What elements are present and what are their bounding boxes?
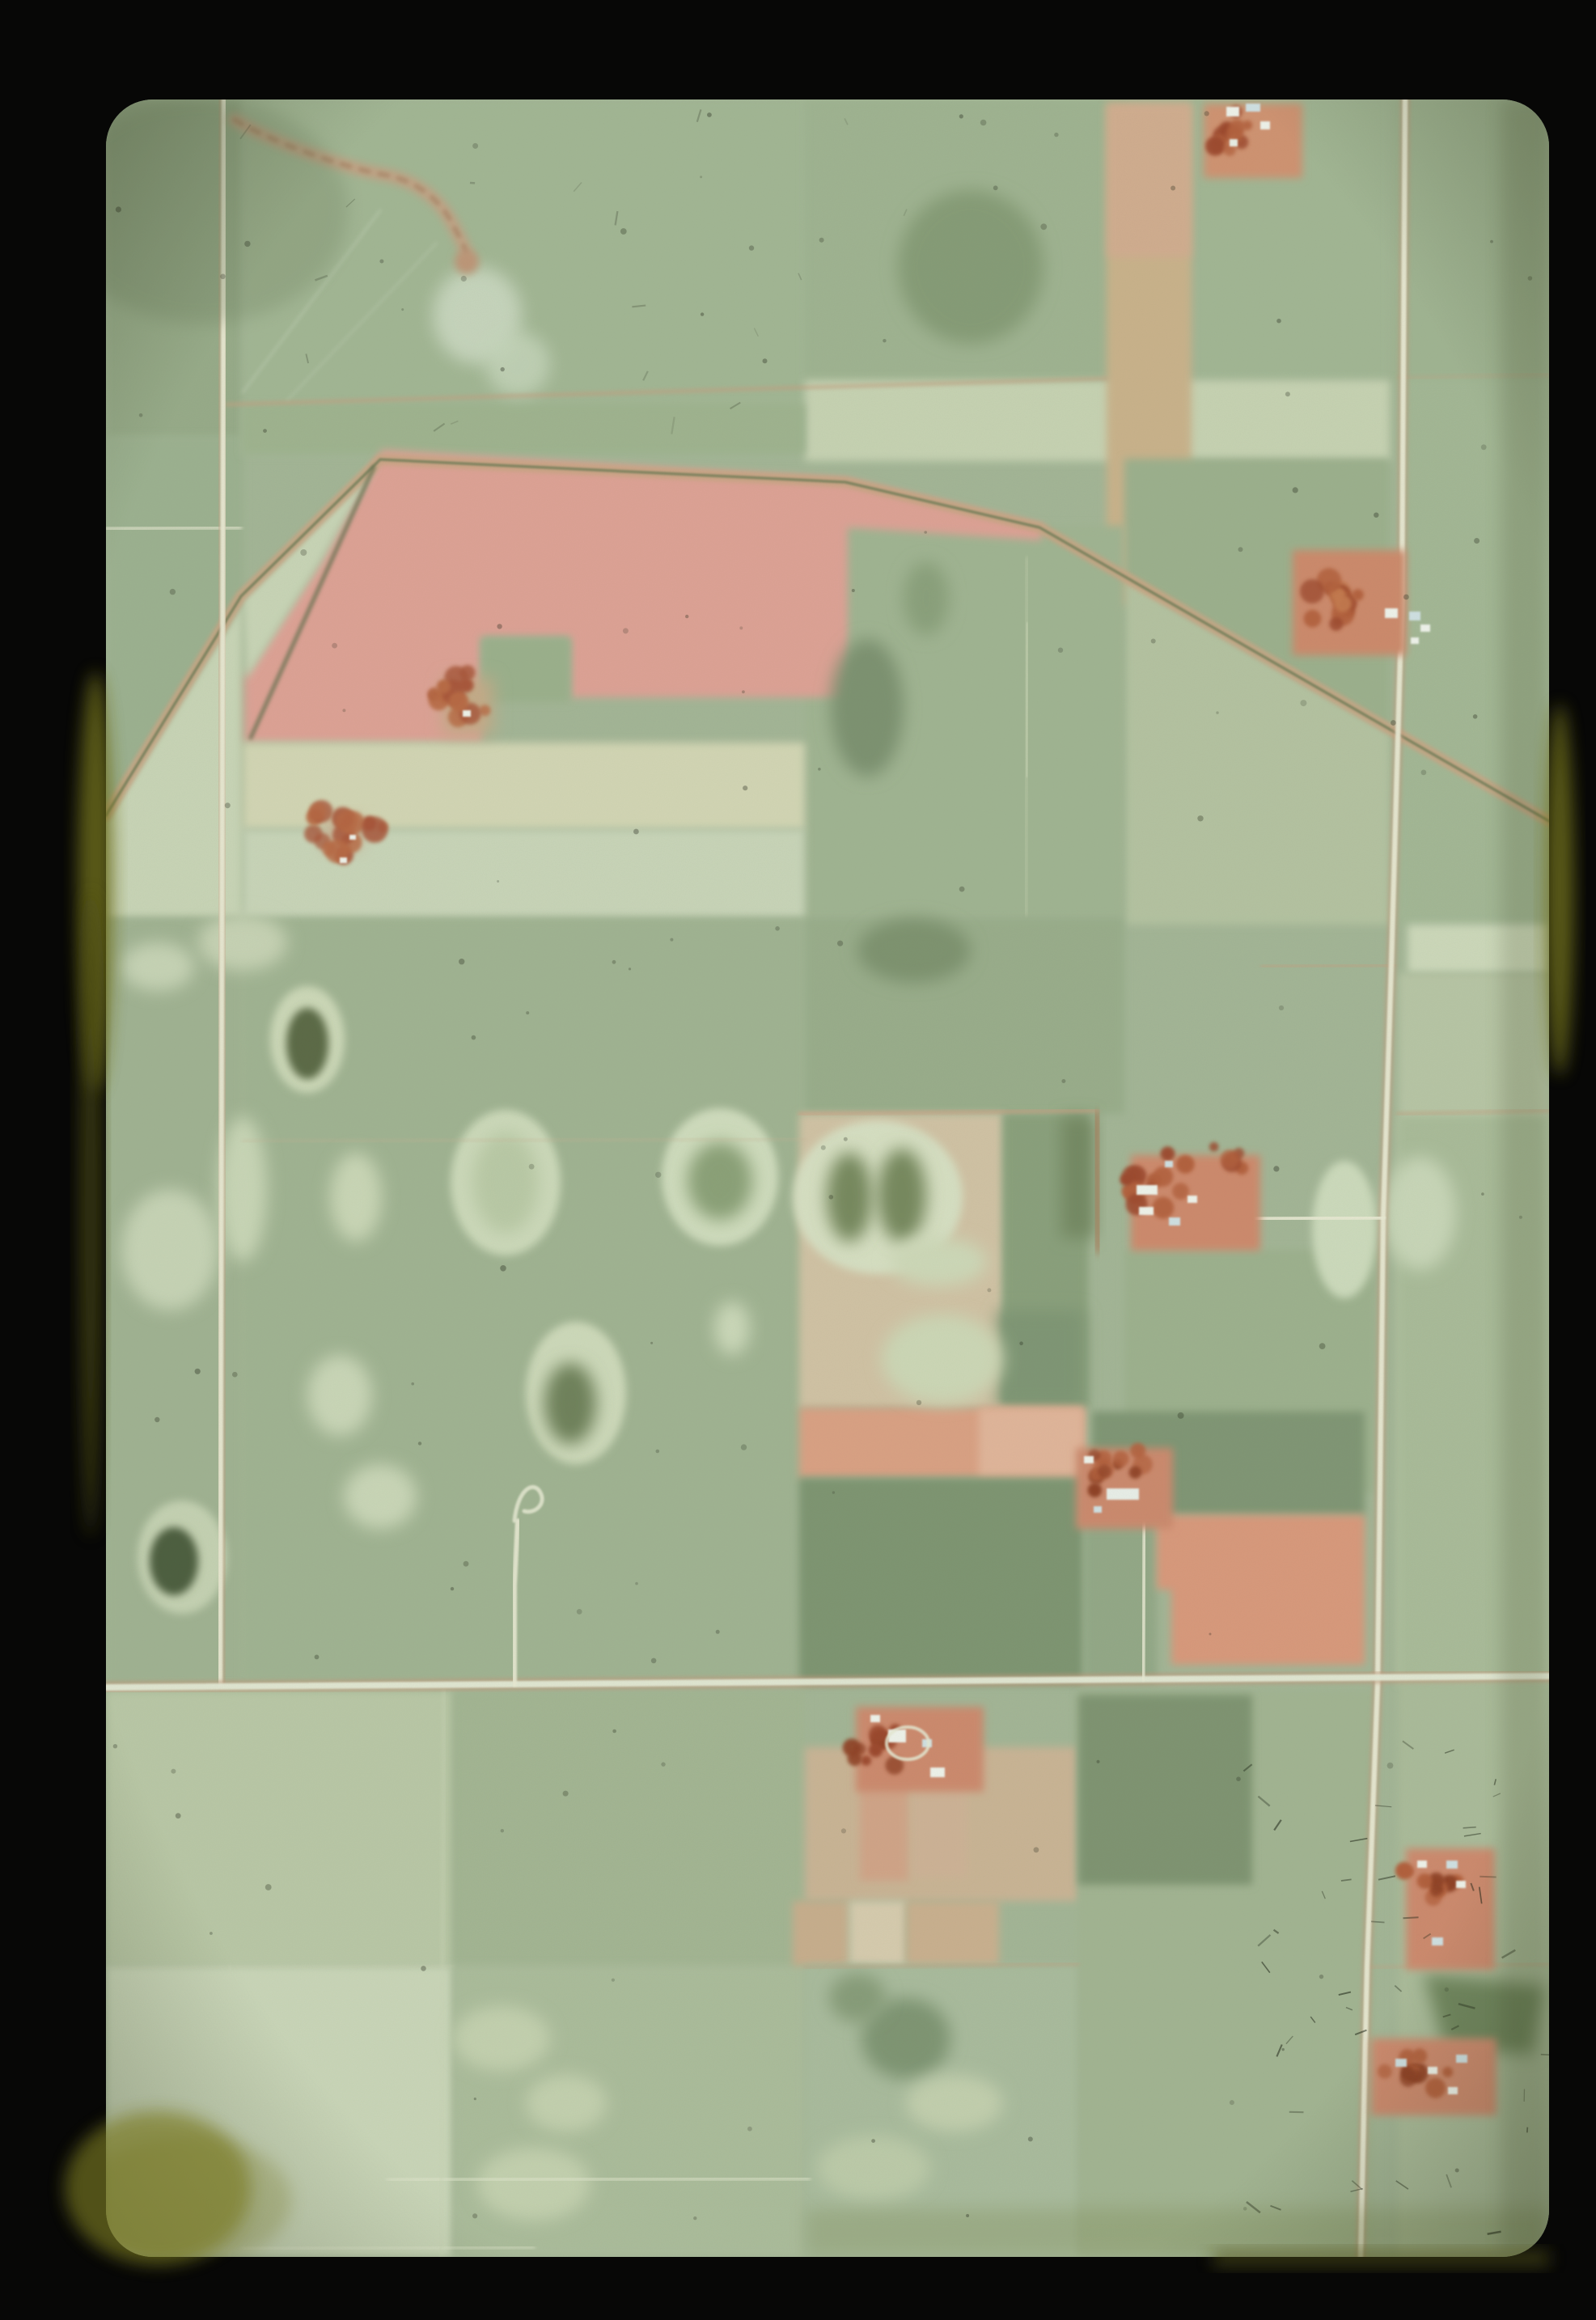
edge-shading-right (1501, 99, 1549, 2257)
light-leak-left-glow (79, 890, 102, 1537)
slide-scan (0, 0, 1596, 2320)
light-leak-right (1545, 704, 1574, 1076)
photo-area (57, 97, 1555, 2265)
light-leak-corner (65, 2111, 251, 2265)
vignette (106, 99, 1549, 2257)
light-leak-bottom-right (1213, 2250, 1549, 2267)
aerial-photo-slide (0, 0, 1596, 2320)
